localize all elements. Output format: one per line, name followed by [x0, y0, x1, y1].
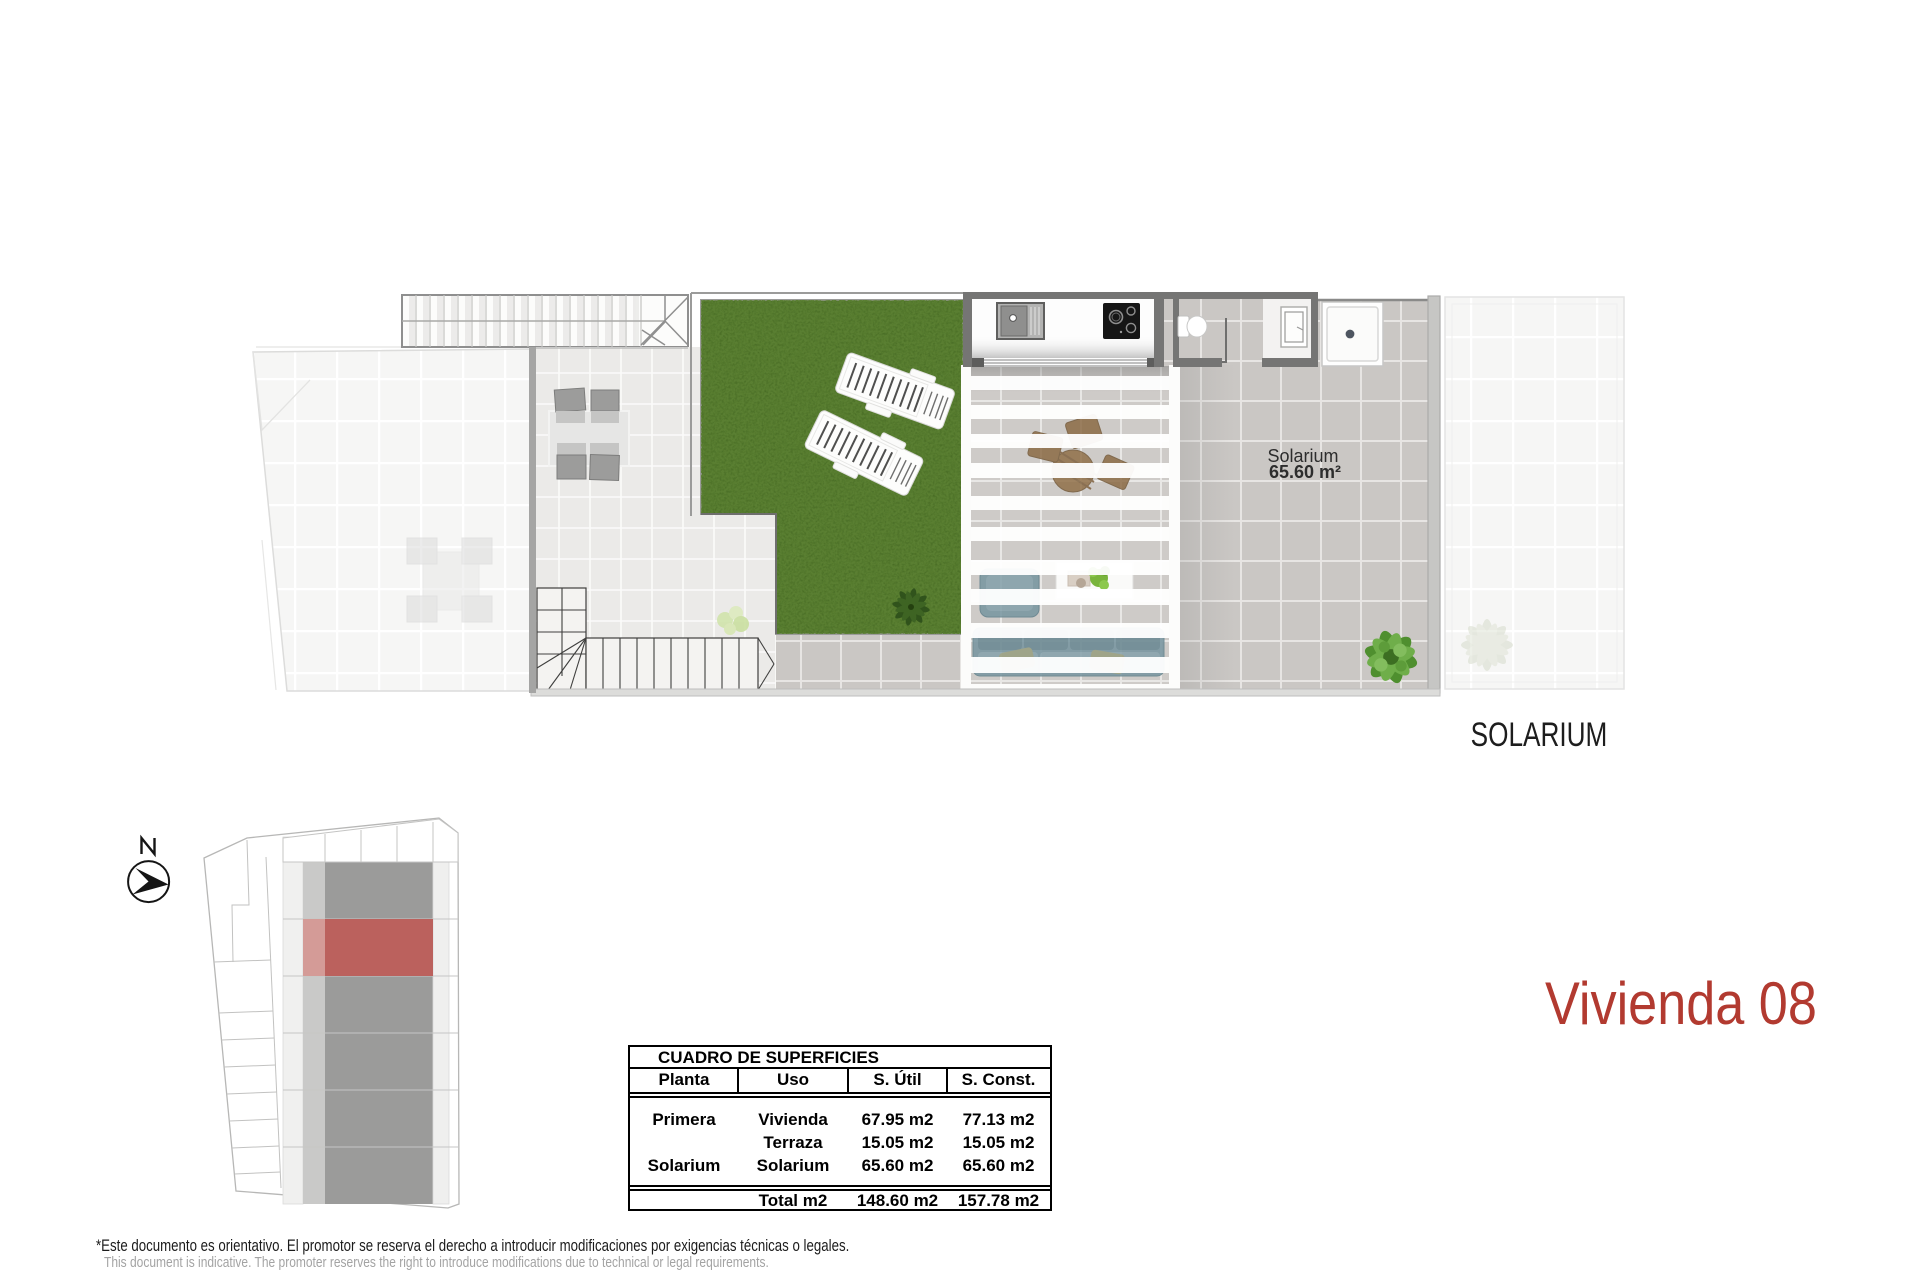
- svg-text:65.60 m²: 65.60 m²: [1269, 462, 1341, 482]
